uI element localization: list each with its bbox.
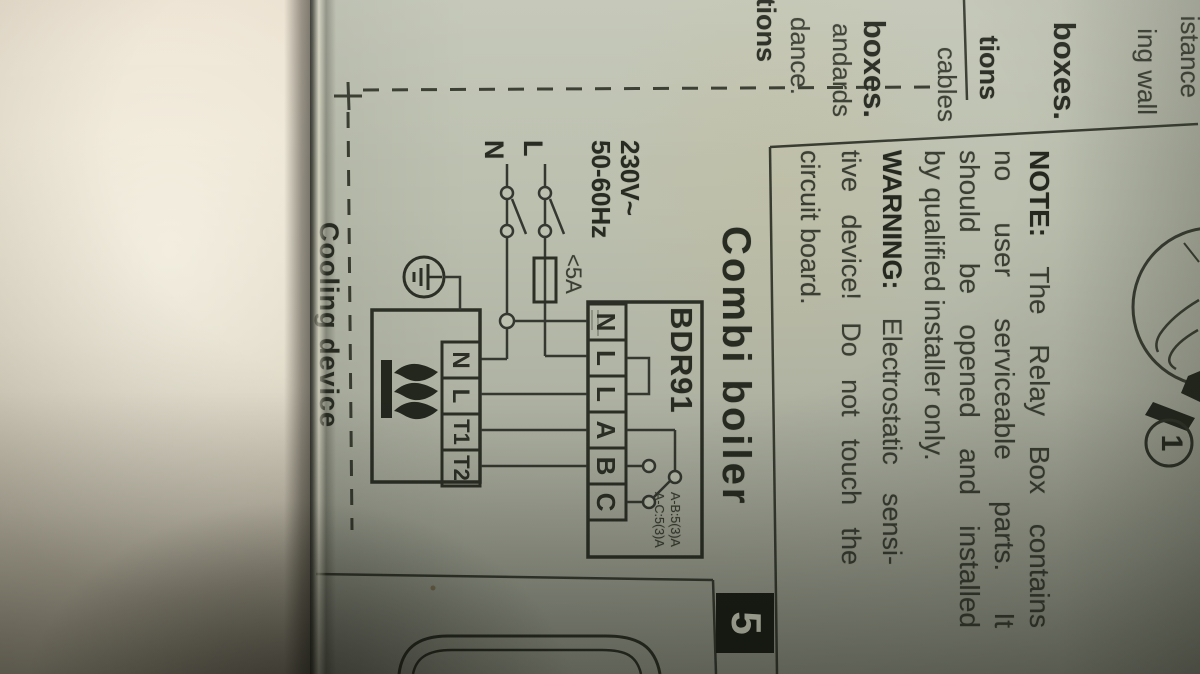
fuse-rating-label: <5A <box>561 254 584 294</box>
boiler-terminal-t2: T2 <box>448 450 474 486</box>
boiler-terminal-n: N <box>446 342 474 378</box>
warning-line-3: circuit board. <box>796 150 824 565</box>
prohibition-wedge-icon <box>1181 371 1200 402</box>
switch-contact <box>539 225 551 237</box>
callout-number: 1 <box>1156 421 1187 465</box>
paper-speck <box>431 586 436 591</box>
link-jumper <box>627 358 649 394</box>
section-rule-right <box>316 574 713 580</box>
live-label: L <box>519 140 547 157</box>
relay-terminal-a: A <box>590 412 621 448</box>
note-line-1: NOTE: The Relay Box contains <box>1025 150 1054 628</box>
flame-icon <box>381 360 392 418</box>
warning-line-2: tive device! Do not touch the <box>837 150 865 565</box>
boiler-terminal-l: L <box>446 378 474 414</box>
switch-blade <box>550 199 564 234</box>
fragment-ing-wall: ing wall <box>1133 28 1160 115</box>
relay-terminal-b: B <box>590 448 621 484</box>
flame-icon <box>394 402 438 419</box>
relay-pivot-contact <box>669 471 681 483</box>
warning-line-1: WARNING: Electrostatic sensi- <box>878 150 906 565</box>
device-outline <box>413 650 641 674</box>
neutral-label: N <box>480 140 508 160</box>
relay-contact-b <box>643 460 655 472</box>
note-label: NOTE: <box>1024 150 1055 237</box>
note-line-3: should be opened and installed <box>955 150 984 628</box>
relay-terminal-c: C <box>590 484 621 520</box>
fragment-istance: istance <box>1176 16 1200 98</box>
flame-icon <box>394 364 438 381</box>
badge-row-rule <box>713 580 716 674</box>
voltage-label: 230V~ 50-60Hz <box>586 140 644 238</box>
relay-terminal-l2: L <box>590 376 621 412</box>
boiler-terminal-t1: T1 <box>448 414 474 450</box>
contact-rating-label: A-B:5(3)A A-C:5(3)A <box>651 492 682 548</box>
step-number: 5 <box>724 593 768 653</box>
relay-terminal-n: N <box>590 304 621 340</box>
fragment-tions: tions <box>975 36 1003 101</box>
photo-frame: istance ing wall boxes. tions cables box… <box>0 0 1200 674</box>
left-column-rule <box>964 0 967 100</box>
contact-rating-ac: A-C:5(3)A <box>651 492 667 548</box>
frequency-value: 50-60Hz <box>586 140 615 238</box>
combi-boiler-title: Combi boiler <box>714 226 756 506</box>
column-rule <box>770 124 1198 147</box>
fragment-boxes: boxes. <box>1048 22 1080 120</box>
contact-rating-ab: A-B:5(3)A <box>667 492 683 548</box>
hand-icon <box>1169 330 1198 369</box>
flame-icon <box>394 383 438 400</box>
fragment-andards: andards <box>828 23 855 117</box>
fragment-tions-2: tions <box>752 0 780 62</box>
switch-contact <box>501 225 513 237</box>
cooling-device-title: Cooling device <box>315 222 343 428</box>
fragment-boxes-2: boxes. <box>858 20 890 118</box>
switch-contact <box>539 187 551 199</box>
voltage-value: 230V~ <box>615 140 644 238</box>
switch-contact <box>501 187 513 199</box>
wall-background <box>0 0 314 674</box>
switch-blade <box>512 199 526 234</box>
manual-page: istance ing wall boxes. tions cables box… <box>310 0 1200 674</box>
wire-earth <box>444 277 460 310</box>
note-line-4: by qualified installer only. <box>920 150 949 628</box>
crop-mark-horizontal <box>348 112 352 530</box>
relay-terminal-l1: L <box>590 340 621 376</box>
relay-model-label: BDR91 <box>665 307 697 414</box>
warning-label: WARNING: <box>877 150 907 289</box>
screwdriver-icon <box>1184 243 1199 262</box>
fragment-dance: dance. <box>786 17 813 95</box>
fragment-cables: cables <box>933 47 960 122</box>
device-outline <box>399 636 660 674</box>
junction-node <box>500 314 514 328</box>
note-line-2: no user serviceable parts. It <box>990 150 1019 628</box>
